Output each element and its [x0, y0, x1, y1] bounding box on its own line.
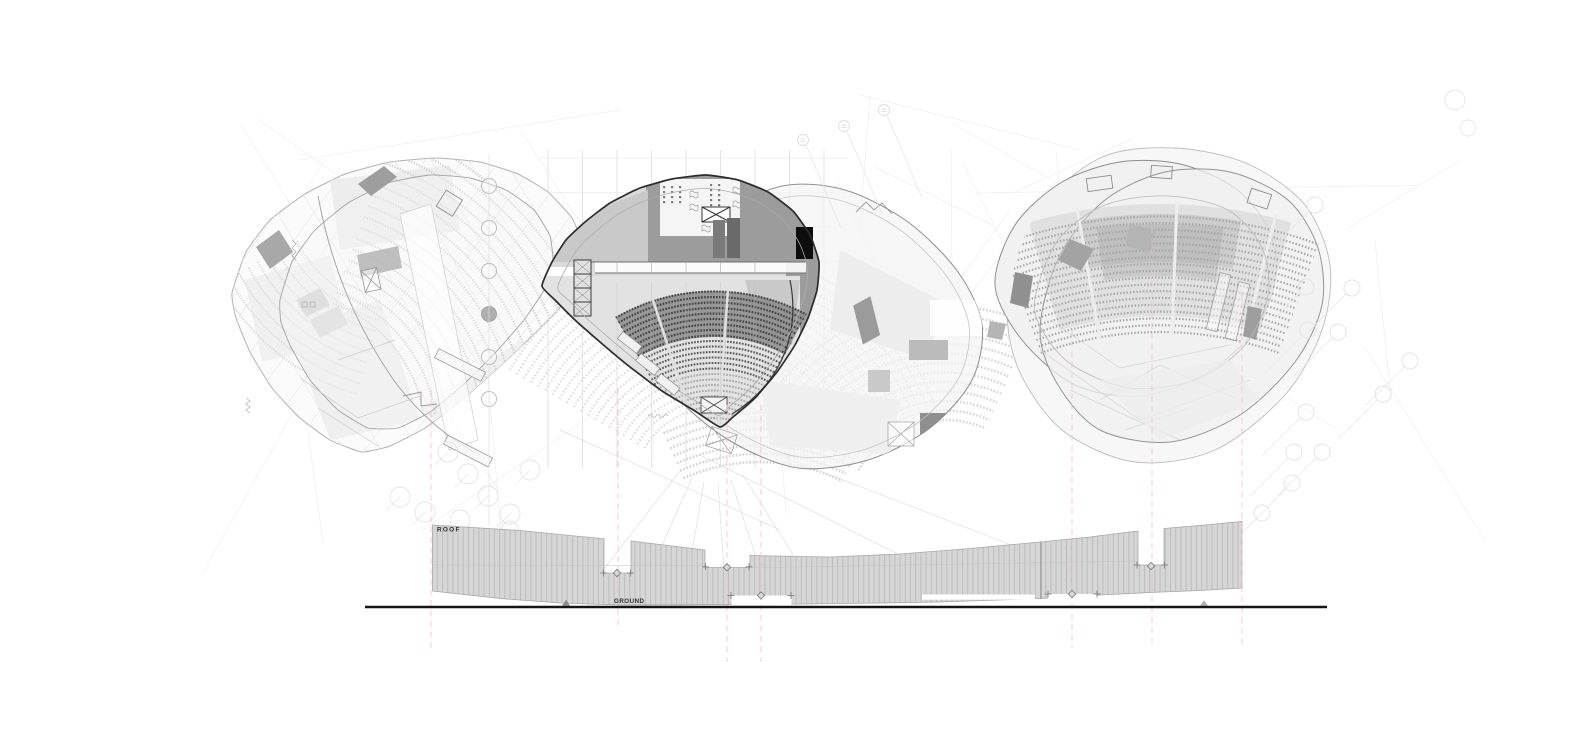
svg-text:ROOF: ROOF	[437, 527, 461, 534]
svg-text:GROUND: GROUND	[614, 598, 645, 605]
